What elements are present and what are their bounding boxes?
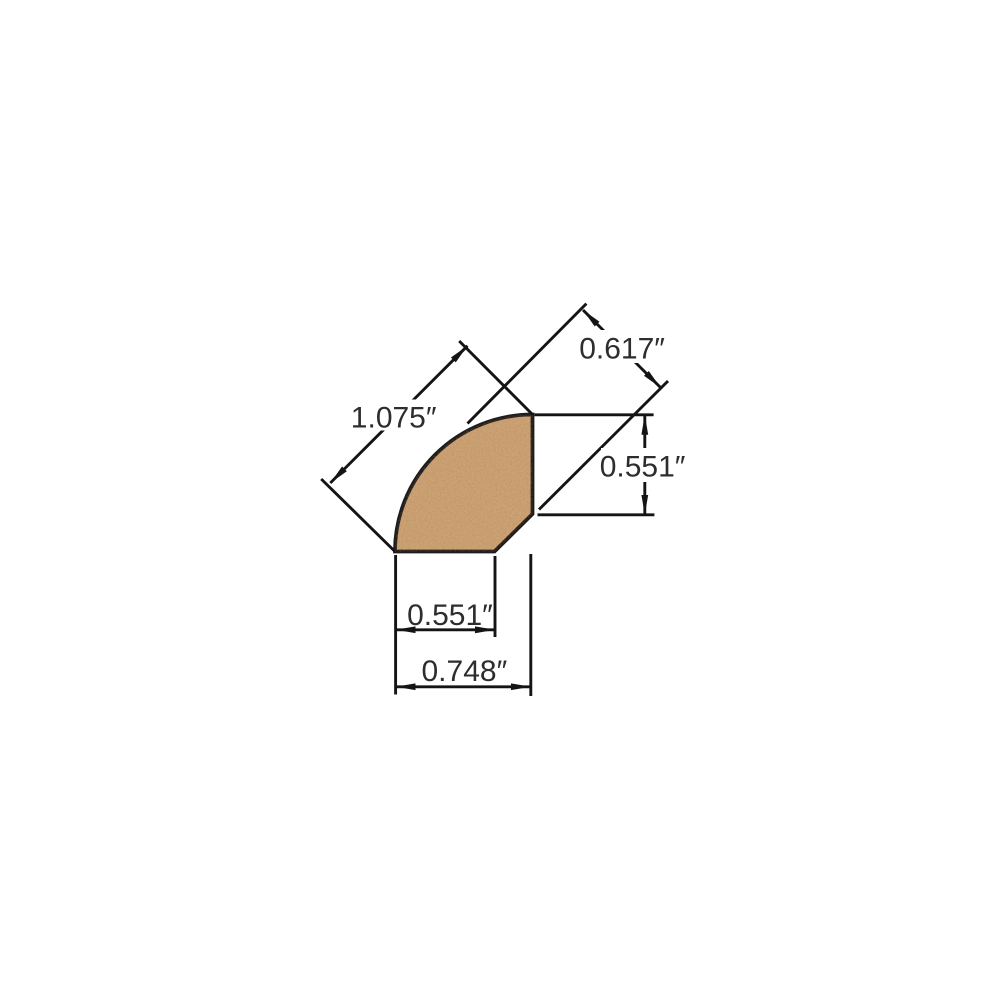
- svg-text:0.551″: 0.551″: [407, 599, 493, 632]
- svg-text:1.075″: 1.075″: [351, 401, 437, 434]
- svg-text:0.551″: 0.551″: [600, 450, 686, 483]
- svg-text:0.617″: 0.617″: [579, 333, 665, 366]
- svg-text:0.748″: 0.748″: [422, 655, 508, 688]
